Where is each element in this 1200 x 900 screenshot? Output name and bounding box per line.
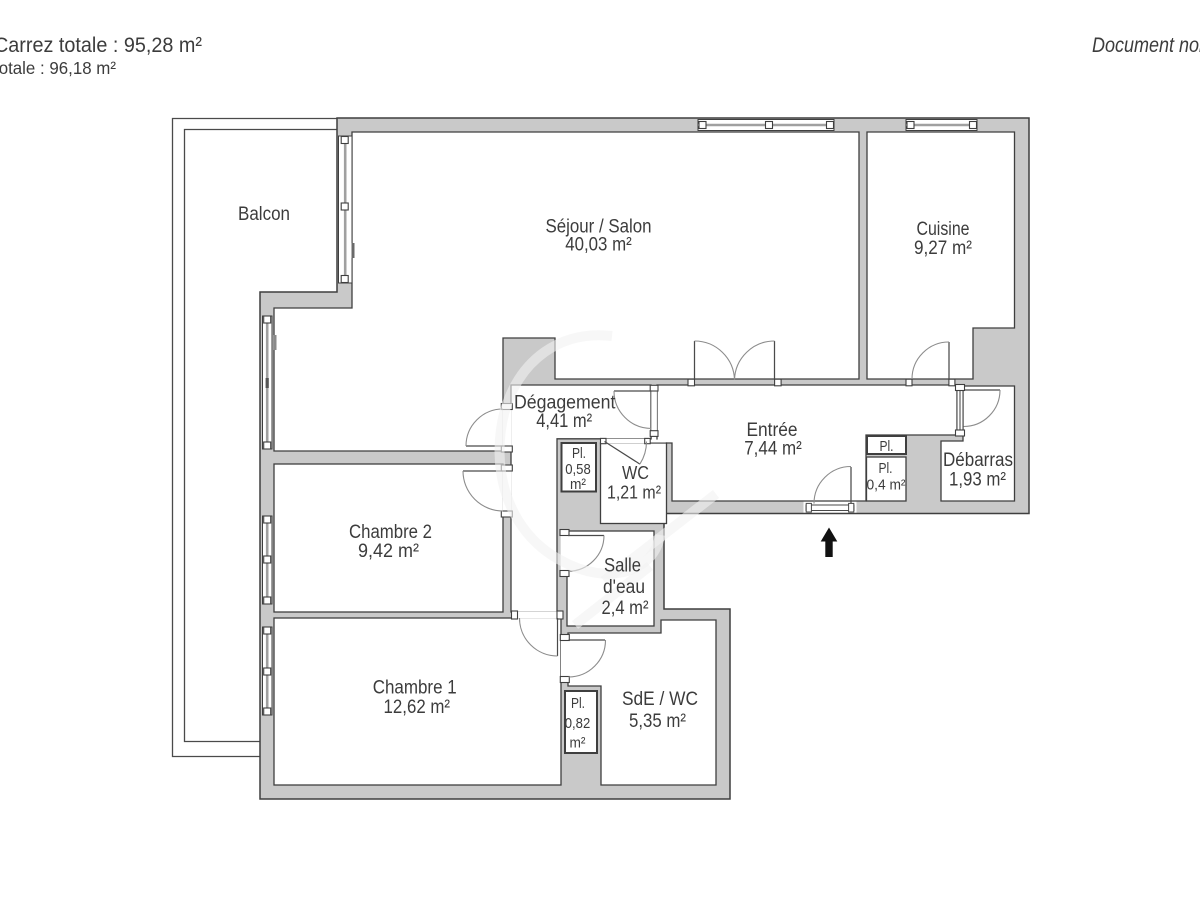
- svg-text:m²: m²: [570, 476, 586, 493]
- svg-text:Carrez totale : 95,28 m²: Carrez totale : 95,28 m²: [0, 33, 202, 57]
- svg-text:Pl.: Pl.: [572, 445, 586, 462]
- svg-text:Balcon: Balcon: [238, 204, 290, 225]
- svg-text:Chambre 2: Chambre 2: [349, 522, 432, 543]
- svg-text:Débarras: Débarras: [943, 450, 1013, 471]
- svg-text:5,35 m²: 5,35 m²: [629, 711, 686, 732]
- svg-text:0,82: 0,82: [565, 715, 591, 732]
- svg-text:7,44 m²: 7,44 m²: [744, 439, 802, 460]
- svg-text:d'eau: d'eau: [603, 577, 645, 598]
- svg-text:1,21 m²: 1,21 m²: [607, 482, 661, 503]
- svg-text:Pl.: Pl.: [879, 460, 893, 477]
- svg-text:Salle: Salle: [604, 556, 641, 577]
- svg-text:0,4 m²: 0,4 m²: [867, 478, 906, 494]
- svg-text:2,4 m²: 2,4 m²: [602, 598, 649, 619]
- svg-text:totale : 96,18 m²: totale : 96,18 m²: [0, 58, 116, 78]
- svg-text:12,62 m²: 12,62 m²: [384, 697, 451, 718]
- svg-text:Chambre 1: Chambre 1: [373, 678, 457, 699]
- svg-text:9,42 m²: 9,42 m²: [358, 541, 419, 562]
- svg-text:m²: m²: [570, 735, 586, 752]
- svg-text:40,03 m²: 40,03 m²: [565, 235, 632, 256]
- svg-text:Pl.: Pl.: [571, 695, 585, 712]
- svg-text:Document non contractuel: Document non contractuel: [1092, 33, 1200, 57]
- svg-text:Pl.: Pl.: [880, 438, 894, 455]
- svg-text:1,93 m²: 1,93 m²: [949, 470, 1006, 491]
- svg-text:WC: WC: [622, 462, 649, 483]
- svg-text:Cuisine: Cuisine: [917, 219, 970, 240]
- svg-text:9,27 m²: 9,27 m²: [914, 238, 972, 259]
- svg-text:4,41 m²: 4,41 m²: [536, 411, 592, 432]
- svg-text:SdE / WC: SdE / WC: [622, 689, 698, 710]
